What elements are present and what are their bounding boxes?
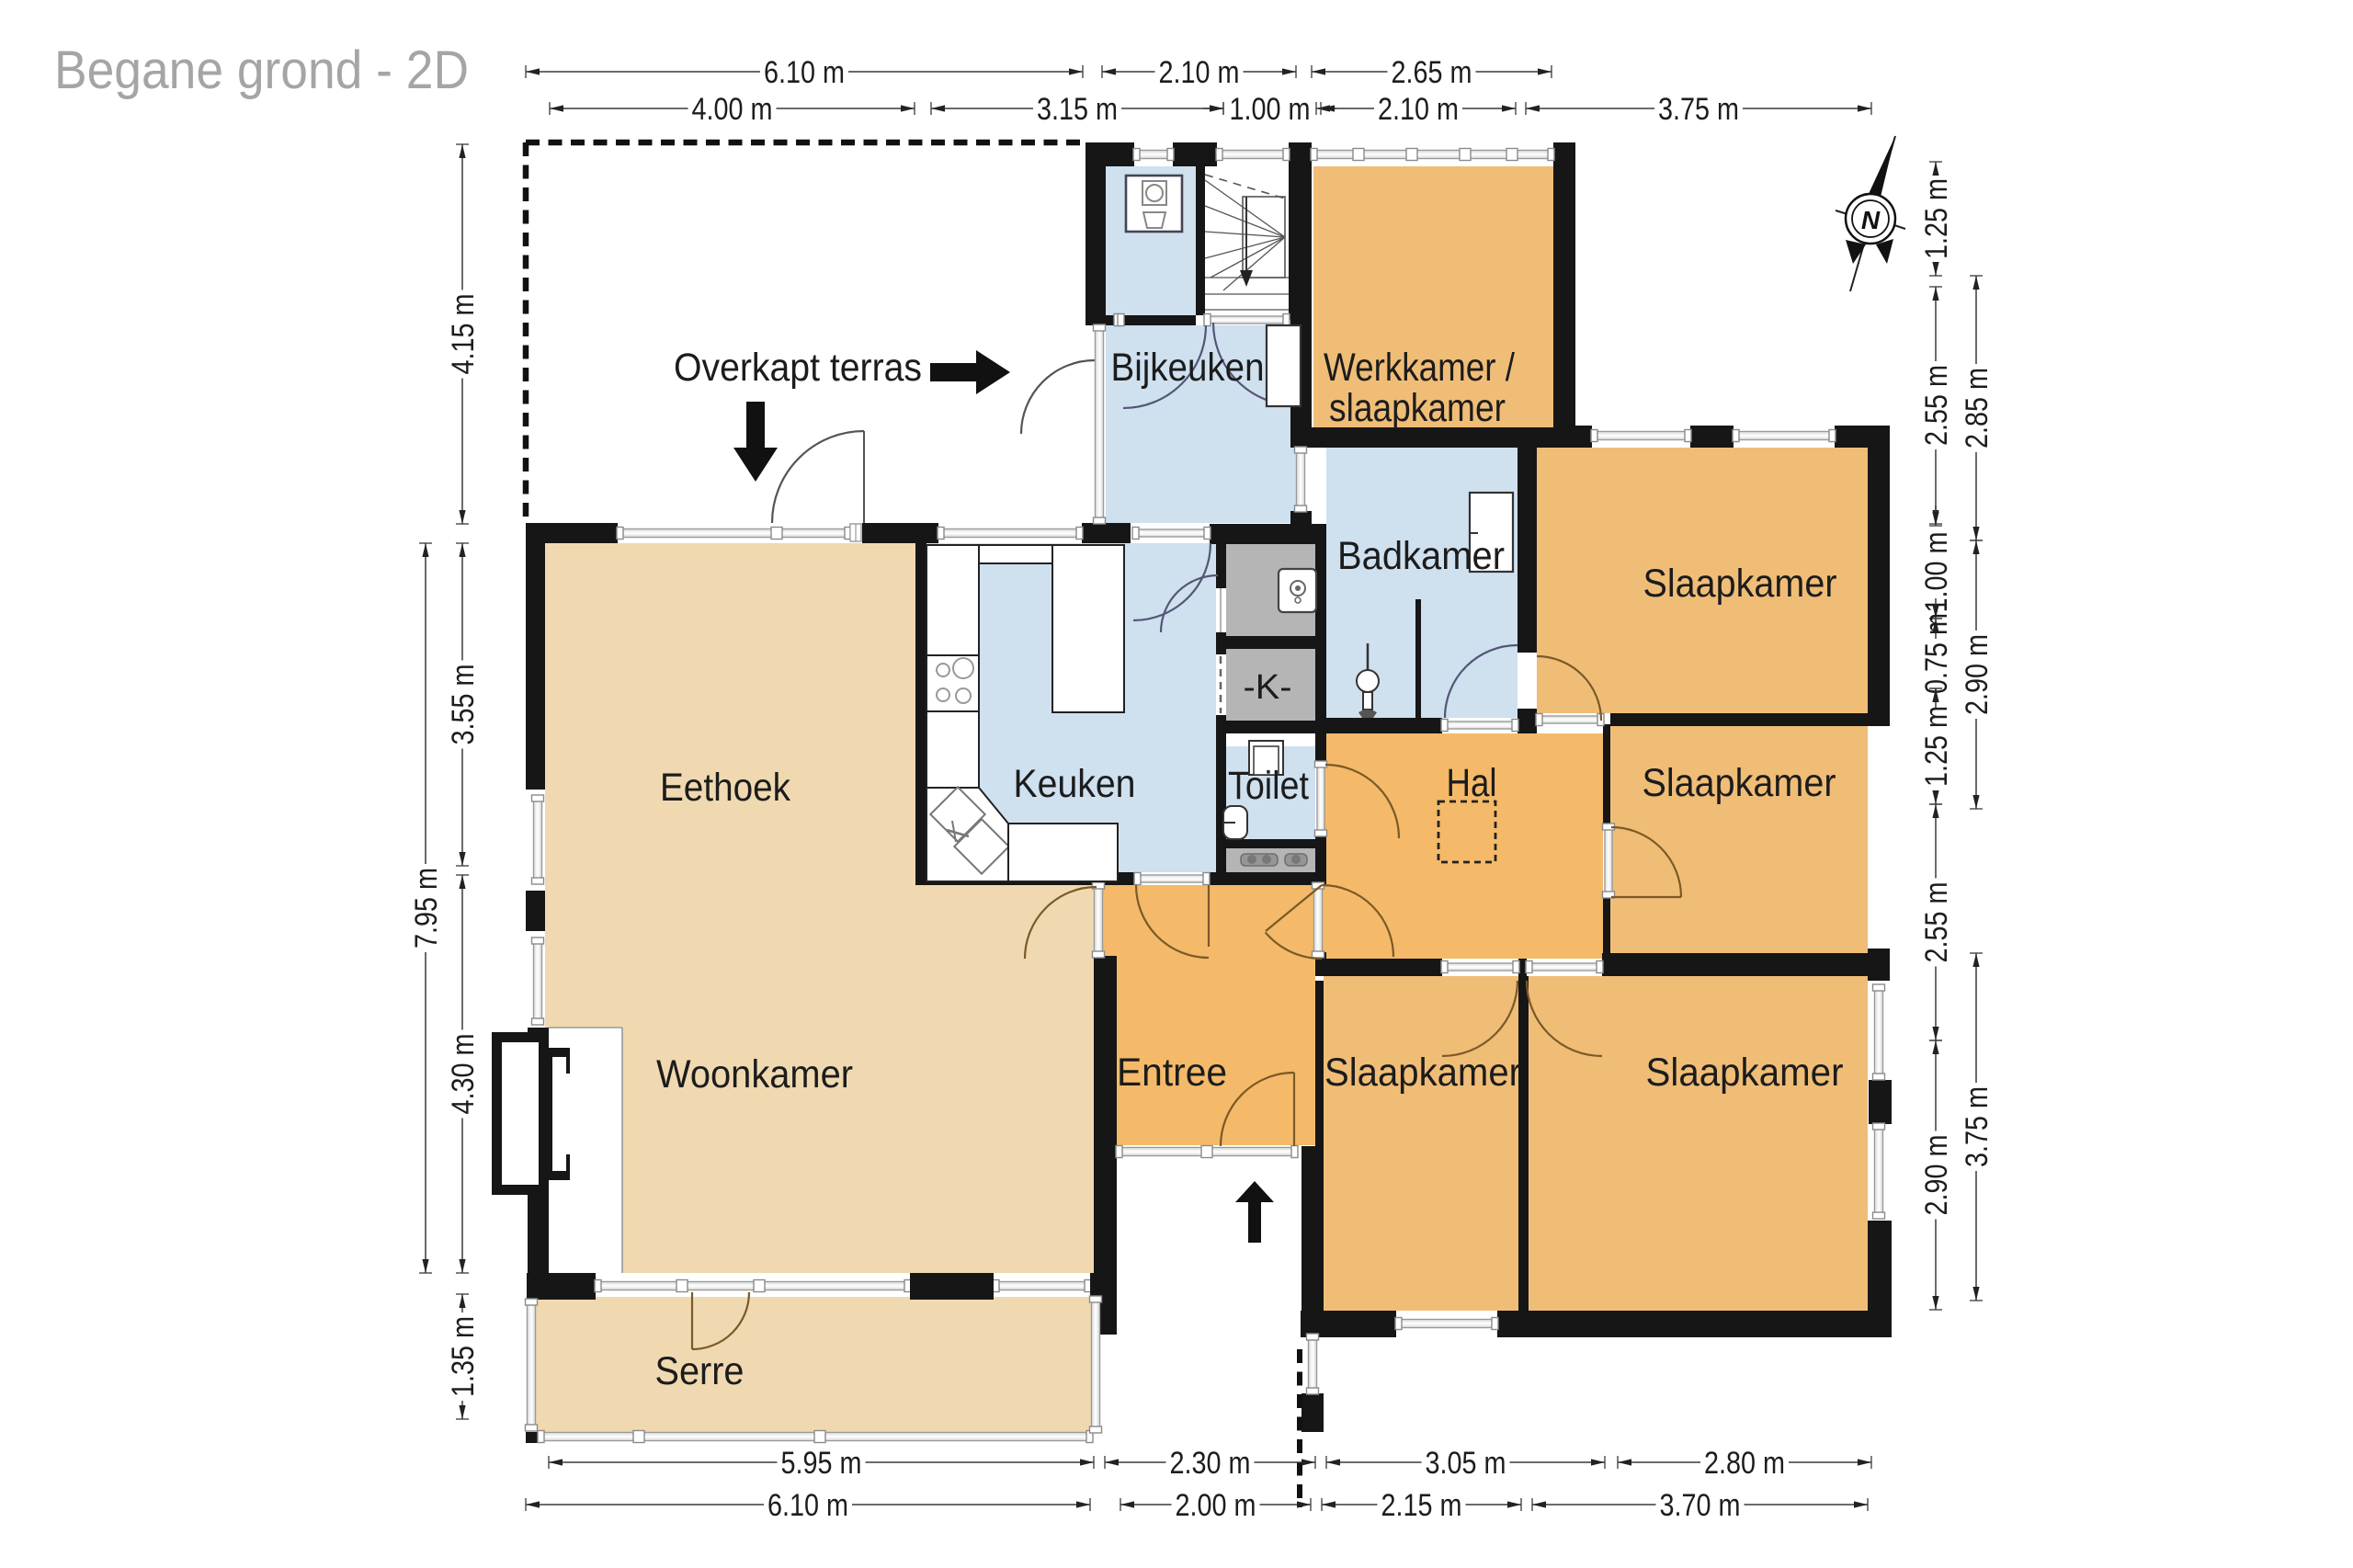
svg-text:1.35 m: 1.35 m: [446, 1316, 481, 1397]
svg-text:Begane grond - 2D: Begane grond - 2D: [54, 40, 469, 100]
svg-text:Serre: Serre: [655, 1349, 745, 1393]
svg-text:6.10 m: 6.10 m: [767, 1488, 848, 1523]
svg-text:Overkapt terras: Overkapt terras: [674, 346, 922, 390]
svg-text:2.65 m: 2.65 m: [1392, 55, 1472, 90]
svg-text:2.90 m: 2.90 m: [1960, 634, 1995, 715]
svg-text:2.85 m: 2.85 m: [1960, 368, 1995, 449]
svg-text:6.10 m: 6.10 m: [764, 55, 845, 90]
svg-text:7.95 m: 7.95 m: [409, 868, 444, 949]
svg-text:2.80 m: 2.80 m: [1704, 1446, 1785, 1481]
svg-text:Eethoek: Eethoek: [660, 766, 790, 810]
svg-text:-K-: -K-: [1244, 668, 1292, 707]
svg-text:3.75 m: 3.75 m: [1960, 1086, 1995, 1167]
svg-text:2.10 m: 2.10 m: [1159, 55, 1240, 90]
svg-text:3.55 m: 3.55 m: [446, 665, 481, 745]
svg-text:Werkkamer /: Werkkamer /: [1324, 346, 1515, 390]
svg-text:3.15 m: 3.15 m: [1037, 92, 1118, 127]
svg-text:Woonkamer: Woonkamer: [656, 1052, 853, 1096]
svg-text:4.15 m: 4.15 m: [446, 294, 481, 375]
svg-text:Bijkeuken: Bijkeuken: [1111, 346, 1265, 390]
svg-text:2.55 m: 2.55 m: [1919, 365, 1954, 446]
svg-text:2.10 m: 2.10 m: [1378, 92, 1459, 127]
svg-text:2.30 m: 2.30 m: [1170, 1446, 1251, 1481]
svg-text:2.55 m: 2.55 m: [1919, 882, 1954, 963]
svg-text:Keuken: Keuken: [1014, 762, 1136, 806]
svg-text:Slaapkamer: Slaapkamer: [1324, 1051, 1521, 1095]
svg-text:Hal: Hal: [1447, 761, 1497, 805]
svg-text:1.00 m: 1.00 m: [1230, 92, 1311, 127]
svg-text:0.75 m: 0.75 m: [1919, 613, 1954, 694]
svg-text:4.30 m: 4.30 m: [446, 1034, 481, 1115]
svg-text:3.05 m: 3.05 m: [1426, 1446, 1506, 1481]
svg-text:1.25 m: 1.25 m: [1919, 178, 1954, 259]
svg-text:3.75 m: 3.75 m: [1658, 92, 1739, 127]
svg-text:N: N: [1861, 206, 1881, 234]
svg-text:1.25 m: 1.25 m: [1919, 706, 1954, 787]
svg-text:2.90 m: 2.90 m: [1919, 1135, 1954, 1216]
svg-text:Slaapkamer: Slaapkamer: [1643, 761, 1836, 805]
svg-text:5.95 m: 5.95 m: [781, 1446, 862, 1481]
svg-text:Slaapkamer: Slaapkamer: [1646, 1051, 1844, 1095]
svg-text:1.00 m: 1.00 m: [1919, 532, 1954, 613]
svg-text:2.00 m: 2.00 m: [1176, 1488, 1256, 1523]
svg-text:Badkamer: Badkamer: [1337, 534, 1505, 578]
svg-text:slaapkamer: slaapkamer: [1329, 386, 1506, 430]
svg-text:Entree: Entree: [1117, 1051, 1227, 1095]
svg-text:3.70 m: 3.70 m: [1660, 1488, 1741, 1523]
svg-text:Slaapkamer: Slaapkamer: [1643, 562, 1837, 606]
svg-text:2.15 m: 2.15 m: [1381, 1488, 1462, 1523]
svg-text:4.00 m: 4.00 m: [692, 92, 773, 127]
svg-text:Toilet: Toilet: [1228, 764, 1309, 808]
